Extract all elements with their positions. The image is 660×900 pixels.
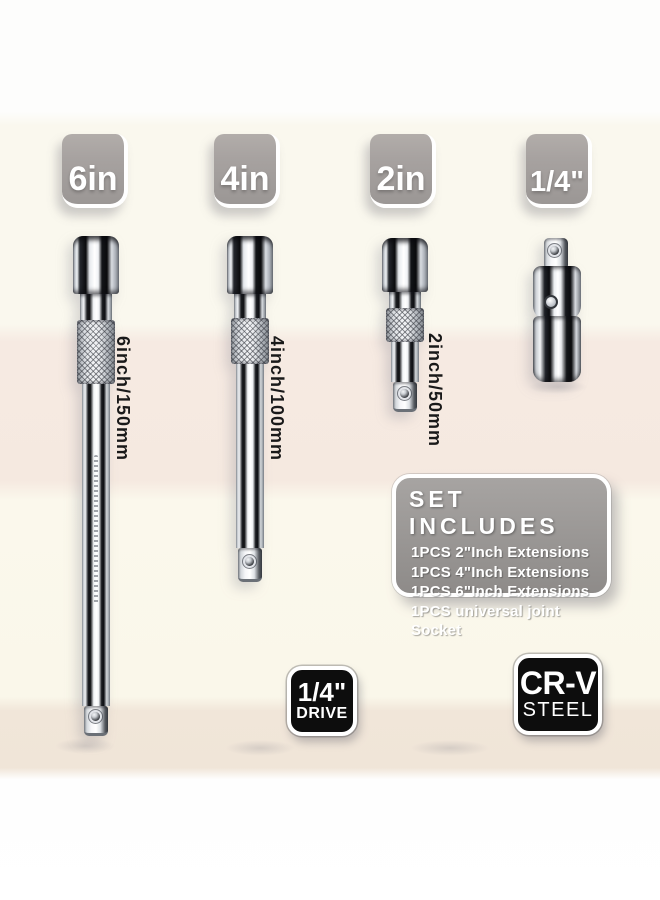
shadow-smudge <box>410 740 490 756</box>
set-includes-item-6in: 1PCS 6"Inch Extensions <box>411 582 607 602</box>
set-includes-panel: SET INCLUDES 1PCS 2"Inch Extensions 1PCS… <box>392 474 611 597</box>
ball-detent <box>550 246 559 255</box>
ball-detent <box>245 557 254 566</box>
set-includes-item-ujoint: 1PCS universal joint Socket <box>411 602 607 641</box>
joint-yoke <box>533 266 581 320</box>
extension-bar-6in-image <box>73 236 119 738</box>
shadow-smudge <box>225 740 295 756</box>
set-includes-title: SET INCLUDES <box>409 486 607 540</box>
set-includes-item-2in: 1PCS 2"Inch Extensions <box>411 543 607 563</box>
knurl-grip <box>77 320 115 384</box>
size-badge-quarter-inch: 1/4" <box>526 134 592 208</box>
drive-size-label: DRIVE <box>296 705 347 723</box>
shaft <box>391 342 419 382</box>
dimension-label-6in: 6inch/150mm <box>112 336 133 461</box>
shadow-smudge <box>528 380 588 394</box>
size-badge-2in: 2in <box>370 134 436 208</box>
neck <box>389 292 421 308</box>
material-name: CR-V <box>520 668 596 699</box>
product-image: 6in 4in 2in 1/4" <box>0 0 660 900</box>
neck <box>234 294 266 320</box>
size-badge-4in: 4in <box>214 134 280 208</box>
shaft <box>236 364 264 548</box>
engraved-text-mark <box>94 455 98 605</box>
size-badge-4in-label: 4in <box>220 160 269 199</box>
neck <box>80 294 112 322</box>
ball-detent <box>400 389 409 398</box>
drive-size-badge: 1/4" DRIVE <box>287 666 357 736</box>
drive-size-value: 1/4" <box>298 679 346 705</box>
size-badge-2in-label: 2in <box>376 160 425 199</box>
square-drive-tip <box>84 706 108 736</box>
knurl-grip <box>386 308 424 342</box>
socket-head <box>227 236 273 294</box>
size-badge-6in: 6in <box>62 134 128 208</box>
pivot-pin <box>544 295 558 309</box>
joint-body <box>533 316 581 382</box>
set-includes-item-4in: 1PCS 4"Inch Extensions <box>411 563 607 583</box>
size-badge-quarter-inch-label: 1/4" <box>530 166 584 199</box>
material-label: STEEL <box>523 699 594 722</box>
socket-head <box>382 238 428 292</box>
universal-joint-image <box>533 238 581 382</box>
knurl-grip <box>231 318 269 364</box>
extension-bar-2in-image <box>382 238 428 412</box>
shadow-smudge <box>55 738 115 754</box>
material-badge: CR-V STEEL <box>514 654 602 735</box>
dimension-label-2in: 2inch/50mm <box>424 333 445 447</box>
size-badge-6in-label: 6in <box>68 160 117 199</box>
socket-head <box>73 236 119 294</box>
ball-detent <box>91 712 100 721</box>
dimension-label-4in: 4inch/100mm <box>266 336 287 461</box>
